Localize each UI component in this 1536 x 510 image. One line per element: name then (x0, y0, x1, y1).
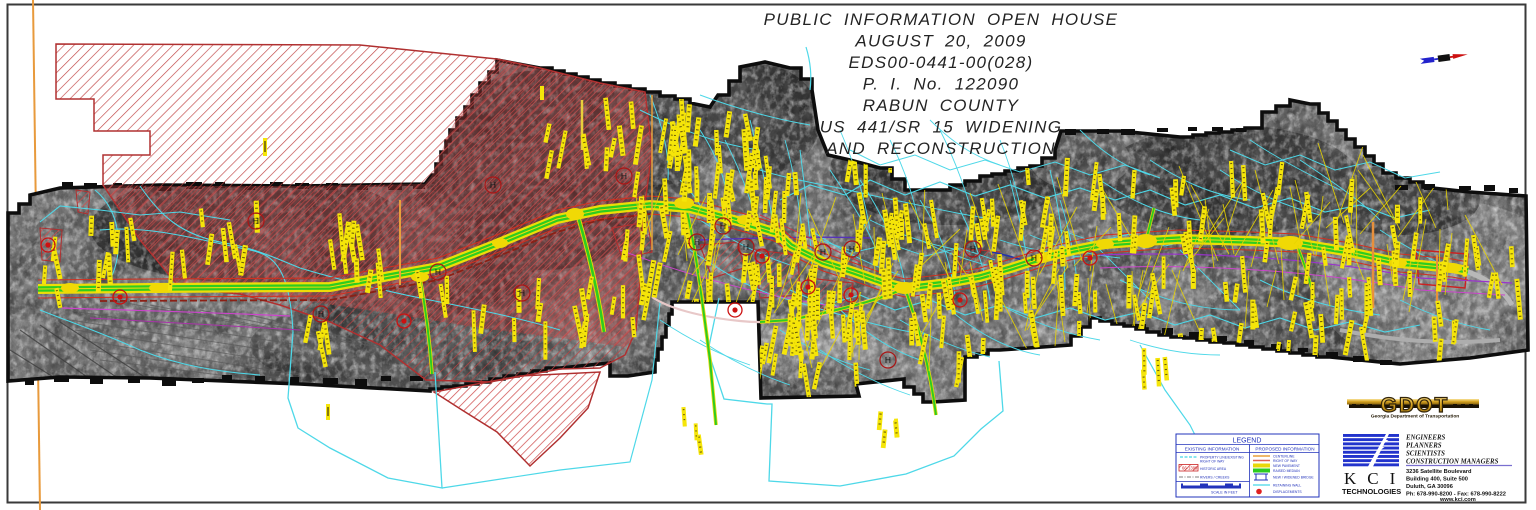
svg-text:H: H (253, 216, 259, 226)
svg-text:RETAINING WALL: RETAINING WALL (1273, 484, 1301, 488)
svg-text:H: H (318, 309, 324, 319)
svg-text:Building 400, Suite 500: Building 400, Suite 500 (1406, 477, 1468, 483)
svg-text:RIGHT OF WAY: RIGHT OF WAY (1273, 459, 1298, 463)
svg-text:H: H (1031, 253, 1037, 263)
svg-text:LEGEND: LEGEND (1233, 438, 1262, 445)
svg-text:ENGINEERS: ENGINEERS (1405, 435, 1446, 442)
svg-text:H: H (970, 244, 976, 254)
svg-text:US 441/SR 15 WIDENING: US 441/SR 15 WIDENING (820, 118, 1063, 137)
svg-text:RIGHT OF WAY: RIGHT OF WAY (1200, 460, 1225, 464)
svg-text:H: H (743, 242, 749, 252)
svg-text:DISPLACEMENTS: DISPLACEMENTS (1273, 490, 1302, 494)
svg-text:H: H (490, 180, 496, 190)
svg-text:Duluth, GA 30096: Duluth, GA 30096 (1406, 484, 1453, 490)
svg-text:3236 Satellite Boulevard: 3236 Satellite Boulevard (1406, 469, 1472, 475)
svg-text:PROPOSED INFORMATION: PROPOSED INFORMATION (1255, 447, 1314, 452)
svg-text:RABUN COUNTY: RABUN COUNTY (863, 96, 1020, 115)
svg-text:SCIENTISTS: SCIENTISTS (1406, 451, 1445, 458)
svg-text:H: H (820, 247, 826, 257)
svg-text:H: H (519, 288, 525, 298)
svg-text:H: H (435, 267, 441, 277)
svg-text:PLANNERS: PLANNERS (1406, 443, 1442, 450)
svg-text:CENTERLINE: CENTERLINE (1273, 455, 1295, 459)
svg-text:H: H (720, 221, 726, 231)
svg-text:H: H (694, 237, 700, 247)
svg-text:CONSTRUCTION MANAGERS: CONSTRUCTION MANAGERS (1406, 459, 1499, 466)
svg-text:KCI: KCI (1344, 469, 1406, 488)
svg-text:RIVERS / CREEKS: RIVERS / CREEKS (1200, 476, 1230, 480)
svg-text:HISTORIC AREA: HISTORIC AREA (1200, 467, 1227, 471)
svg-text:SCALE IN FEET: SCALE IN FEET (1211, 491, 1238, 495)
svg-text:H: H (621, 171, 627, 181)
svg-text:H: H (885, 355, 891, 365)
svg-text:PUBLIC INFORMATION OPEN HOUSE: PUBLIC INFORMATION OPEN HOUSE (764, 10, 1119, 29)
svg-text:66-1399: 66-1399 (1182, 466, 1198, 471)
svg-text:NEW PAVEMENT: NEW PAVEMENT (1273, 464, 1300, 468)
svg-text:AUGUST 20, 2009: AUGUST 20, 2009 (854, 32, 1026, 51)
svg-text:TECHNOLOGIES: TECHNOLOGIES (1342, 487, 1401, 496)
svg-text:RAISED MEDIAN: RAISED MEDIAN (1273, 469, 1300, 473)
svg-text:EXISTING INFORMATION: EXISTING INFORMATION (1185, 447, 1240, 452)
svg-text:AND RECONSTRUCTION: AND RECONSTRUCTION (825, 139, 1056, 158)
svg-text:NEW / WIDENED BRIDGE: NEW / WIDENED BRIDGE (1273, 476, 1314, 480)
svg-text:P. I. No. 122090: P. I. No. 122090 (863, 75, 1019, 94)
svg-text:H: H (849, 244, 855, 254)
svg-text:www.kci.com: www.kci.com (1439, 497, 1476, 503)
svg-text:Georgia Department of Transpor: Georgia Department of Transportation (1371, 414, 1460, 420)
svg-text:EDS00-0441-00(028): EDS00-0441-00(028) (849, 53, 1034, 72)
